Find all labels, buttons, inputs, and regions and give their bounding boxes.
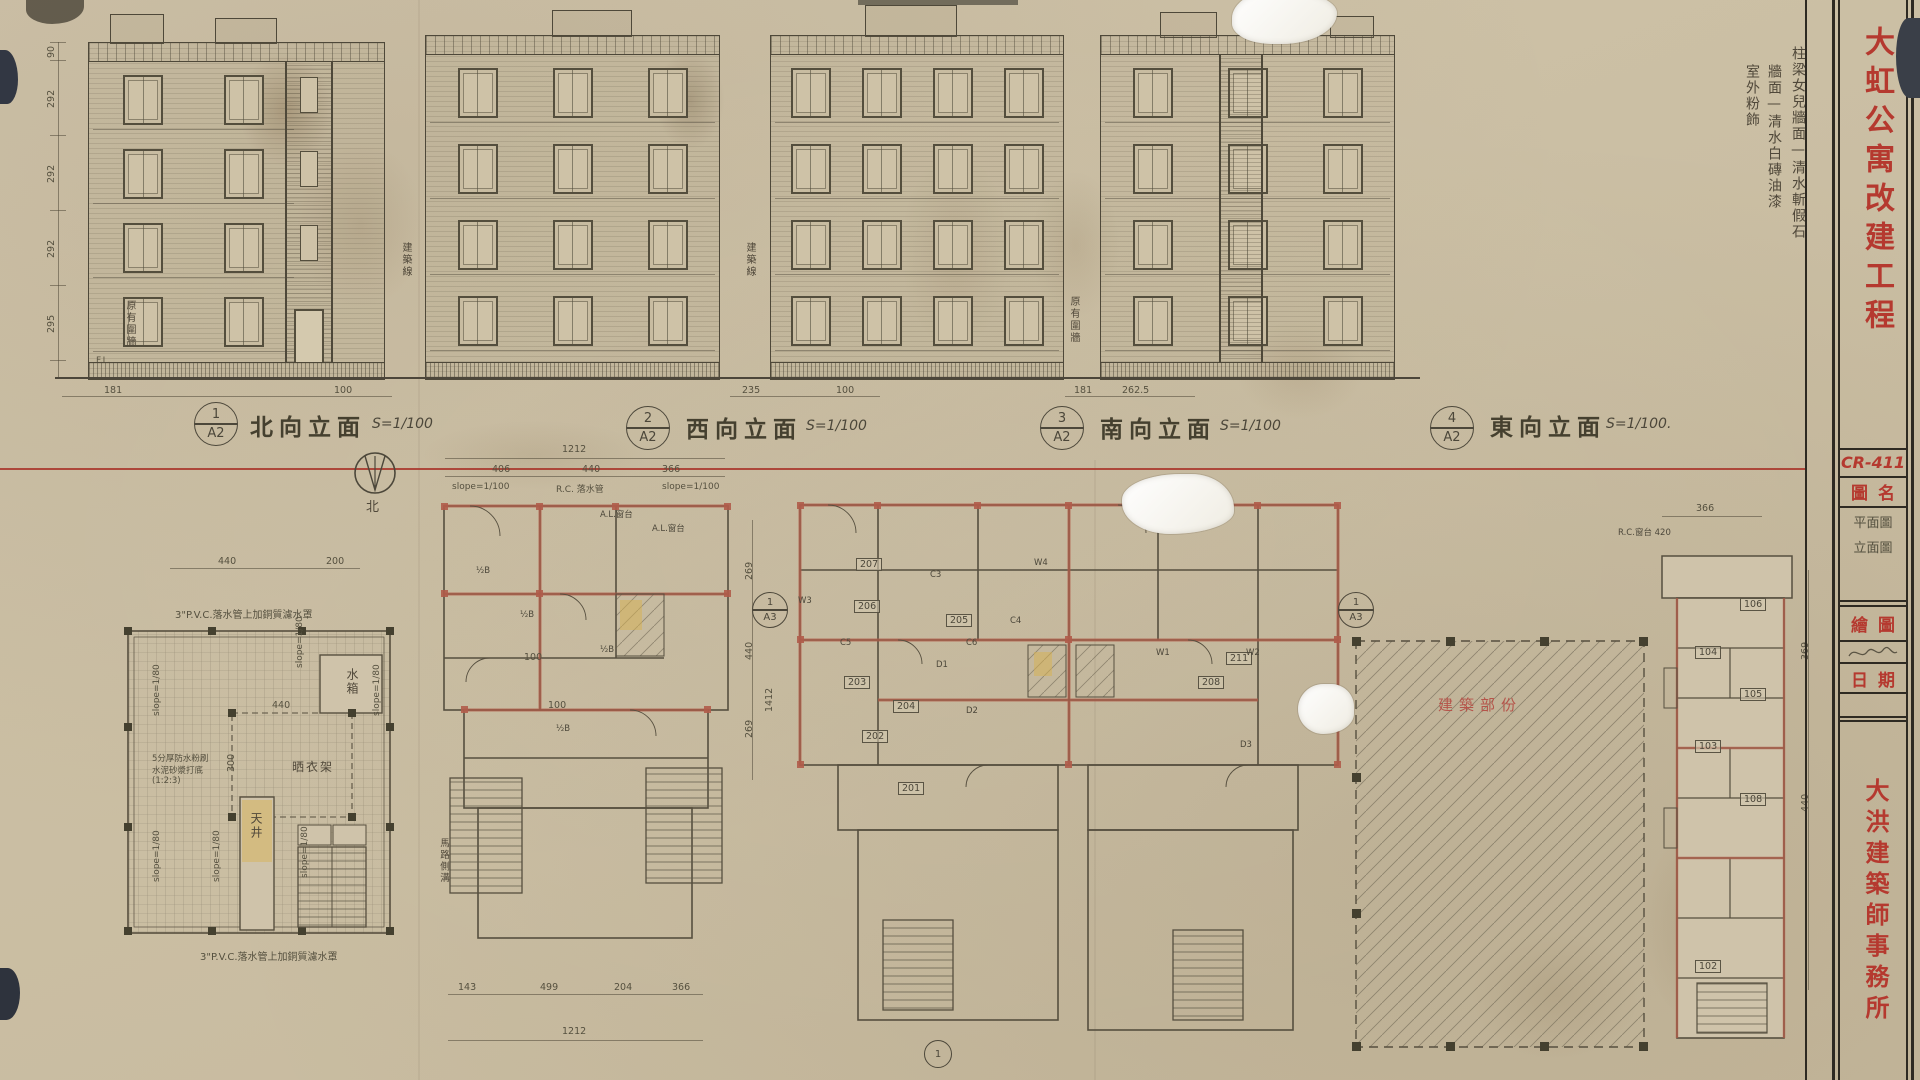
- ref-sheet: A2: [1443, 430, 1460, 445]
- slope-label: slope=1/80: [152, 664, 162, 716]
- roof-center-dim-h: 300: [226, 754, 237, 772]
- entrance-door: [294, 309, 324, 363]
- street-gutter-label: 馬路側溝: [436, 838, 450, 884]
- room-number: 203: [844, 676, 870, 689]
- room-number: 205: [946, 614, 972, 627]
- ref-sheet: A2: [1053, 430, 1070, 445]
- base-dim: 181: [1074, 385, 1092, 396]
- base-dim: 100: [836, 385, 854, 396]
- base-dim-line: [1065, 396, 1195, 397]
- window: [791, 296, 831, 346]
- parapet: [89, 43, 384, 62]
- firm-name: 大洪建築師事務所: [1858, 778, 1893, 1026]
- paper-stain: [420, 420, 650, 490]
- plan2-slope-note-left: slope=1/100: [452, 482, 509, 492]
- elevation-ref-3: 3A2: [1040, 406, 1084, 450]
- room-number: 104: [1695, 646, 1721, 659]
- drafter-signature-scribble: [1847, 644, 1899, 660]
- plan4-right-dim-line: [1808, 570, 1809, 990]
- stair-window: [300, 151, 318, 187]
- elevation-scale: S=1/100: [372, 416, 433, 432]
- base-dim: 100: [334, 385, 352, 396]
- window: [933, 68, 973, 118]
- plan4-top-dim: 366: [1696, 503, 1714, 514]
- plan2-bottom-dim: 143: [458, 982, 476, 993]
- column-tag: C3: [930, 570, 941, 580]
- window: [1323, 220, 1363, 270]
- light-well-label: 天井: [248, 812, 265, 840]
- edge-smudge: [0, 968, 20, 1020]
- existing-fence-label: 原有圍牆: [1066, 296, 1081, 344]
- roof-bulkhead: [215, 18, 277, 44]
- plan2-bottom-dim: 204: [614, 982, 632, 993]
- plan2-bottom-dim: 499: [540, 982, 558, 993]
- plan2-top-dim: 440: [582, 464, 600, 475]
- elevation-title-west: 西向立面: [686, 410, 802, 444]
- window: [1133, 220, 1173, 270]
- titleblock-border: [1805, 0, 1807, 1080]
- elevation-title-east: 東向立面: [1490, 408, 1606, 442]
- titleblock-border: [1911, 0, 1914, 1080]
- numbered-plan-drawing: [788, 500, 1353, 1055]
- drawing-name-elevation: 立面圖: [1853, 537, 1892, 556]
- plan2-bottom-dim: 366: [672, 982, 690, 993]
- window: [791, 220, 831, 270]
- window: [553, 144, 593, 194]
- wall-thickness-mark: ½B: [520, 610, 534, 620]
- room-number: 103: [1695, 740, 1721, 753]
- roof-bulkhead: [110, 14, 164, 44]
- ground-floor-strip-drawing: [1652, 548, 1802, 1048]
- window: [553, 296, 593, 346]
- window: [553, 220, 593, 270]
- roof-note-bottom: 3"P.V.C.落水管上加銅質濾水罩: [200, 948, 338, 963]
- room-number: 106: [1740, 598, 1766, 611]
- facade-floor-row: [430, 216, 715, 275]
- window-tag: W1: [1156, 648, 1170, 658]
- facade-floor-row: [430, 140, 715, 199]
- building-line-label: 建築線: [398, 242, 413, 278]
- facade-floor-row: [93, 145, 294, 204]
- slope-label: slope=1/80: [372, 664, 382, 716]
- door-tag: D1: [936, 660, 948, 670]
- paper-tear: [1298, 684, 1354, 734]
- elevation-south: [770, 35, 1064, 380]
- elevation-title-north: 北向立面: [250, 408, 366, 442]
- window: [123, 75, 163, 125]
- door-tag: D3: [1240, 740, 1252, 750]
- dim-tick: [50, 60, 66, 61]
- window: [933, 296, 973, 346]
- grid-ref-circle-right: 1A3: [1338, 592, 1374, 628]
- plan2-total-dim-line: [445, 458, 725, 459]
- date-label: 日期: [1841, 666, 1905, 691]
- sill-note: A.L.窗台: [652, 522, 685, 534]
- window: [123, 223, 163, 273]
- window: [933, 220, 973, 270]
- plan2-right-total: 1412: [764, 688, 775, 712]
- slope-label: slope=1/80: [212, 830, 222, 882]
- plan2-top-dim: 366: [662, 464, 680, 475]
- roof-center-dim-w: 440: [272, 700, 290, 711]
- elevation-ref-4: 4A2: [1430, 406, 1474, 450]
- roof-note-top: 3"P.V.C.落水管上加銅質濾水罩: [175, 606, 313, 621]
- ref-number: 3: [1058, 411, 1066, 426]
- wall-thickness-mark: ½B: [476, 566, 490, 576]
- window: [224, 297, 264, 347]
- door-tag: D2: [966, 706, 978, 716]
- edge-smudge: [858, 0, 1018, 5]
- window: [458, 68, 498, 118]
- plan2-dim-line: [445, 476, 725, 477]
- grid-ref-top: 1: [767, 597, 773, 608]
- plan2-right-dim: 440: [744, 642, 755, 660]
- sheet-number-cell: CR-411: [1840, 450, 1906, 474]
- existing-fence-label: 原有圍牆: [122, 300, 137, 348]
- drawing-sheet: 90 292 292 292 295 F.L.: [0, 0, 1920, 1080]
- drawn-by-label-cell: 繪圖: [1840, 608, 1906, 638]
- window: [123, 149, 163, 199]
- facade-floor-row: [93, 71, 294, 130]
- floor-height-dim: 90: [46, 46, 57, 58]
- plan2-right-dim: 269: [744, 562, 755, 580]
- ground-line: [55, 377, 1420, 379]
- drying-rack-label: 晒衣架: [292, 758, 334, 775]
- titleblock-divider: [1838, 476, 1908, 478]
- floor-height-dim: 295: [46, 315, 57, 333]
- window: [1004, 220, 1044, 270]
- wall-thickness-mark: ½B: [556, 724, 570, 734]
- facade-floor-row: [775, 292, 1059, 351]
- sheet-number: CR-411: [1841, 453, 1905, 472]
- roof-top-dim: 200: [326, 556, 344, 567]
- stair-shaft: [285, 61, 333, 363]
- roof-bulkhead: [552, 10, 632, 37]
- finish-note-walls: 牆面—清水白磚油漆: [1764, 64, 1784, 210]
- slope-label: slope=1/80: [300, 826, 310, 878]
- red-separator-line: [0, 468, 1806, 470]
- window: [791, 68, 831, 118]
- dim-tick: [50, 210, 66, 211]
- edge-smudge: [0, 50, 18, 104]
- water-tank-label: 水箱: [344, 668, 361, 696]
- elevation-ref-1: 1A2: [194, 402, 238, 446]
- north-label: 北: [366, 496, 381, 515]
- elevation-east: [1100, 35, 1395, 380]
- facade-floor-row: [430, 64, 715, 123]
- base-dim: 181: [104, 385, 122, 396]
- stair-window: [300, 225, 318, 261]
- room-number: 108: [1740, 793, 1766, 806]
- grid-ref-top: 1: [1353, 597, 1359, 608]
- titleblock-border: [1906, 0, 1908, 1080]
- window: [648, 144, 688, 194]
- paper-crease: [418, 0, 420, 1080]
- plan2-inner-dim: 100: [548, 700, 566, 711]
- drafter-signature-cell: [1840, 641, 1906, 662]
- elevation-scale: S=1/100.: [1606, 416, 1671, 432]
- window-tag: W3: [798, 596, 812, 606]
- base-dim-line: [62, 396, 392, 397]
- plan2-rc-downpipe-note: R.C. 落水管: [556, 482, 604, 495]
- room-number: 102: [1695, 960, 1721, 973]
- project-title: 大虹公寓改建工程: [1854, 26, 1898, 338]
- window: [1133, 144, 1173, 194]
- window: [1323, 144, 1363, 194]
- column-tag: C4: [1010, 616, 1021, 626]
- roof-top-dim: 440: [218, 556, 236, 567]
- window: [458, 220, 498, 270]
- window: [1323, 68, 1363, 118]
- facade-floor-row: [430, 292, 715, 351]
- elevation-west: [425, 35, 720, 380]
- room-number: 204: [893, 700, 919, 713]
- plan2-total-top: 1212: [562, 444, 586, 455]
- ref-number: 1: [212, 407, 220, 422]
- window-tag: W2: [1246, 648, 1260, 658]
- north-arrow-icon: [352, 450, 398, 496]
- roof-bulkhead: [865, 5, 957, 37]
- wall-thickness-mark: ½B: [600, 645, 614, 655]
- titleblock-divider: [1838, 600, 1908, 602]
- plan2-bottom-dim-line: [448, 994, 703, 995]
- waterproof-note-line2: 水泥砂漿打底: [152, 764, 203, 776]
- titleblock-divider: [1838, 605, 1908, 607]
- parapet: [426, 36, 719, 55]
- base-dim: 262.5: [1122, 385, 1149, 396]
- grid-ref-bottom: A3: [763, 612, 776, 623]
- detail-mark: 1: [935, 1049, 941, 1060]
- room-number: 105: [1740, 688, 1766, 701]
- building-line-label: 建築線: [742, 242, 757, 278]
- elevation-title-south: 南向立面: [1100, 410, 1216, 444]
- plan2-slope-note-right: slope=1/100: [662, 482, 719, 492]
- window: [648, 296, 688, 346]
- rc-sill-note: R.C.窗台 420: [1618, 526, 1671, 538]
- dim-tick: [50, 135, 66, 136]
- window: [1004, 144, 1044, 194]
- titleblock-divider: [1838, 692, 1908, 694]
- window: [1323, 296, 1363, 346]
- window: [1004, 296, 1044, 346]
- ref-sheet: A2: [207, 426, 224, 441]
- edge-smudge: [1896, 18, 1920, 98]
- finish-note-exterior: 室外粉飾: [1742, 64, 1762, 128]
- parapet: [771, 36, 1063, 55]
- waterproof-note-line3: (1:2:3): [152, 776, 181, 786]
- paper-tear: [1122, 474, 1234, 534]
- slope-label: slope=1/80: [295, 616, 305, 668]
- titleblock-divider: [1838, 506, 1908, 508]
- window: [553, 68, 593, 118]
- plan2-inner-dim: 100: [524, 652, 542, 663]
- building-portion-label: 建築部份: [1438, 694, 1522, 715]
- window: [933, 144, 973, 194]
- base-dim: 235: [742, 385, 760, 396]
- waterproof-note-line1: 5分厚防水粉刷: [152, 752, 208, 764]
- stair-window: [300, 77, 318, 113]
- grid-ref-bottom: A3: [1349, 612, 1362, 623]
- drawing-name-label: 圖名: [1841, 479, 1905, 504]
- room-number: 202: [862, 730, 888, 743]
- slope-label: slope=1/80: [152, 830, 162, 882]
- titleblock-border: [1832, 0, 1835, 1080]
- plan2-top-dim: 406: [492, 464, 510, 475]
- dim-tick: [50, 285, 66, 286]
- floor-height-dim: 292: [46, 90, 57, 108]
- window: [1133, 296, 1173, 346]
- window: [862, 220, 902, 270]
- dim-tick: [50, 360, 66, 361]
- ref-sheet: A2: [639, 430, 656, 445]
- drawing-names-cell: 平面圖 立面圖: [1840, 512, 1906, 596]
- stair-shaft: [1219, 54, 1263, 363]
- window: [224, 75, 264, 125]
- plan4-top-dim-line: [1662, 516, 1762, 517]
- drawing-name-plan: 平面圖: [1853, 512, 1892, 531]
- window: [458, 144, 498, 194]
- facade-floor-row: [775, 216, 1059, 275]
- plan2-bottom-total: 1212: [562, 1026, 586, 1037]
- elevation-ref-2: 2A2: [626, 406, 670, 450]
- window: [648, 68, 688, 118]
- titleblock-divider: [1838, 716, 1908, 718]
- facade-south: [775, 56, 1059, 359]
- plan2-bottom-total-line: [448, 1040, 703, 1041]
- roof-top-dim-line: [170, 568, 360, 569]
- titleblock-divider: [1838, 720, 1908, 722]
- facade-floor-row: [775, 140, 1059, 199]
- base-dim-line: [730, 396, 880, 397]
- window-tag: W4: [1034, 558, 1048, 568]
- dim-tick: [50, 42, 66, 43]
- drawn-by-label: 繪圖: [1841, 611, 1905, 636]
- room-number: 207: [856, 558, 882, 571]
- room-number: 206: [854, 600, 880, 613]
- facade-west: [430, 56, 715, 359]
- ref-number: 4: [1448, 411, 1456, 426]
- window: [224, 223, 264, 273]
- window: [862, 296, 902, 346]
- room-number: 201: [898, 782, 924, 795]
- window: [1133, 68, 1173, 118]
- window: [862, 68, 902, 118]
- elevation-scale: S=1/100: [1220, 418, 1281, 434]
- column-tag: C6: [966, 638, 977, 648]
- floor-height-dim: 292: [46, 240, 57, 258]
- facade-floor-row: [775, 64, 1059, 123]
- plan2-right-dim: 269: [744, 720, 755, 738]
- window: [1004, 68, 1044, 118]
- window: [791, 144, 831, 194]
- ref-number: 2: [644, 411, 652, 426]
- room-number: 208: [1198, 676, 1224, 689]
- edge-smudge: [26, 0, 84, 24]
- window: [648, 220, 688, 270]
- column-tag: C5: [840, 638, 851, 648]
- sill-note: A.L.窗台: [600, 508, 633, 520]
- detail-mark-circle: 1: [924, 1040, 952, 1068]
- window: [224, 149, 264, 199]
- elevation-scale: S=1/100: [806, 418, 867, 434]
- facade-floor-row: [93, 219, 294, 278]
- date-label-cell: 日期: [1840, 664, 1906, 692]
- drawing-name-label-cell: 圖名: [1840, 479, 1906, 504]
- grid-ref-circle-left: 1A3: [752, 592, 788, 628]
- window: [458, 296, 498, 346]
- window: [862, 144, 902, 194]
- floor-height-dim: 292: [46, 165, 57, 183]
